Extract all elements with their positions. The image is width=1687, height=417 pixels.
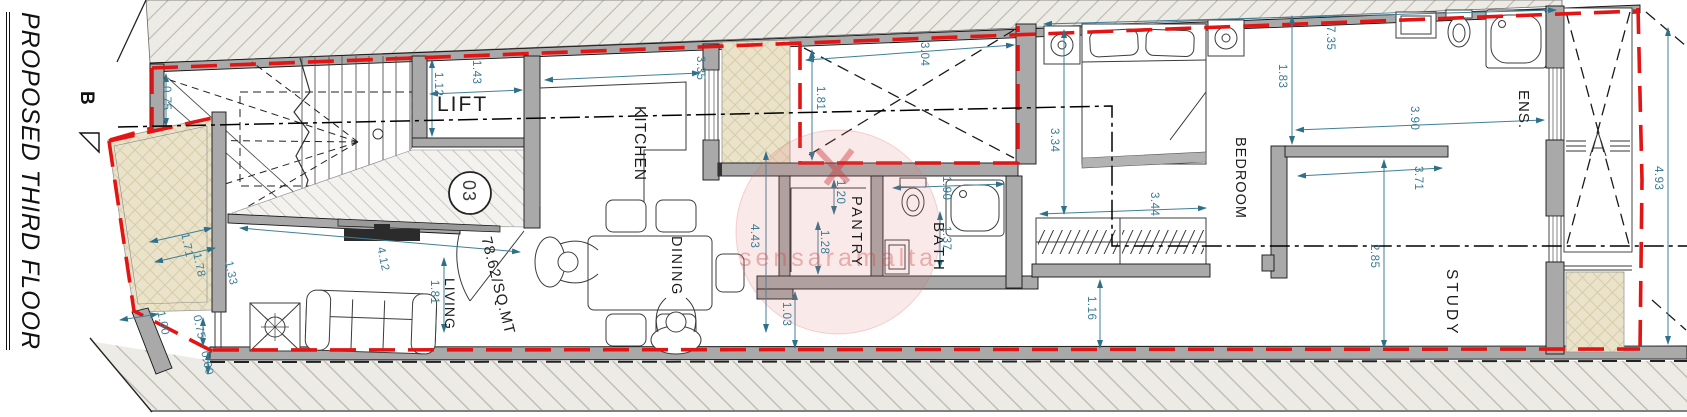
dimension-label-13-1.16: 1.16	[1085, 296, 1097, 320]
drawing-title: PROPOSED THIRD FLOOR	[6, 12, 44, 350]
room-label-bedroom: BEDROOM	[1232, 137, 1248, 219]
room-label-kitchen: KITCHEN	[630, 106, 648, 181]
dimension-label-3-3.35: 3.35	[694, 56, 706, 80]
room-label-dining: DINING	[668, 236, 684, 296]
dimension-label-18-3.71: 3.71	[1412, 166, 1424, 190]
dimension-label-15-1.83: 1.83	[1276, 64, 1288, 88]
dimension-label-8-1.28: 1.28	[818, 230, 830, 254]
dimension-label-22-4.12: 4.12	[374, 246, 391, 272]
dimension-label-2-1.43: 1.43	[470, 60, 482, 84]
dimension-label-9-1.03: 1.03	[780, 302, 792, 326]
dimension-label-27-0.75: 0.75	[190, 314, 207, 340]
floor-plan-canvas: PROPOSED THIRD FLOOR B 03 sensaramalta L…	[0, 0, 1687, 417]
dimension-label-6-4.43: 4.43	[748, 224, 760, 248]
dimension-label-16-7.35: 7.35	[1324, 26, 1336, 50]
dimension-label-17-3.90: 3.90	[1408, 106, 1420, 130]
dimension-label-19-2.85: 2.85	[1368, 244, 1380, 268]
dimension-label-7-1.20: 1.20	[834, 180, 846, 204]
dimension-label-14-3.34: 3.34	[1048, 128, 1060, 152]
dimension-label-0-0.75: 0.75	[160, 86, 172, 110]
dimension-label-1-1.12: 1.12	[432, 72, 444, 96]
dimension-label-4-3.04: 3.04	[918, 42, 930, 66]
unit-number: 03	[458, 180, 479, 202]
room-label-ens: ENS.	[1515, 90, 1532, 129]
dimension-label-26-1.00: 1.00	[154, 310, 171, 336]
dimension-label-12-3.44: 3.44	[1148, 192, 1160, 216]
room-label-area: 78.62/SQ.MT	[478, 235, 519, 336]
watermark-text: sensaramalta	[739, 244, 937, 273]
section-marker-label: B	[75, 91, 97, 105]
annotation-layer: PROPOSED THIRD FLOOR B 03 sensaramalta L…	[0, 0, 1687, 417]
dimension-label-28-0.60: 0.60	[198, 350, 215, 376]
dimension-label-21-1.81: 1.81	[428, 280, 440, 304]
dimension-label-25-1.33: 1.33	[222, 260, 239, 286]
dimension-label-20-4.93: 4.93	[1652, 166, 1664, 190]
dimension-label-5-1.81: 1.81	[814, 86, 826, 110]
room-label-pantry: PANTRY	[848, 196, 864, 268]
room-label-living: LIVING	[442, 278, 458, 330]
dimension-label-11-1.37: 1.37	[940, 226, 952, 250]
room-label-lift: LIFT	[437, 93, 488, 117]
dimension-label-10-1.90: 1.90	[940, 176, 952, 200]
dimension-label-24-1.78: 1.78	[190, 252, 207, 278]
room-label-study: STUDY	[1442, 269, 1460, 337]
